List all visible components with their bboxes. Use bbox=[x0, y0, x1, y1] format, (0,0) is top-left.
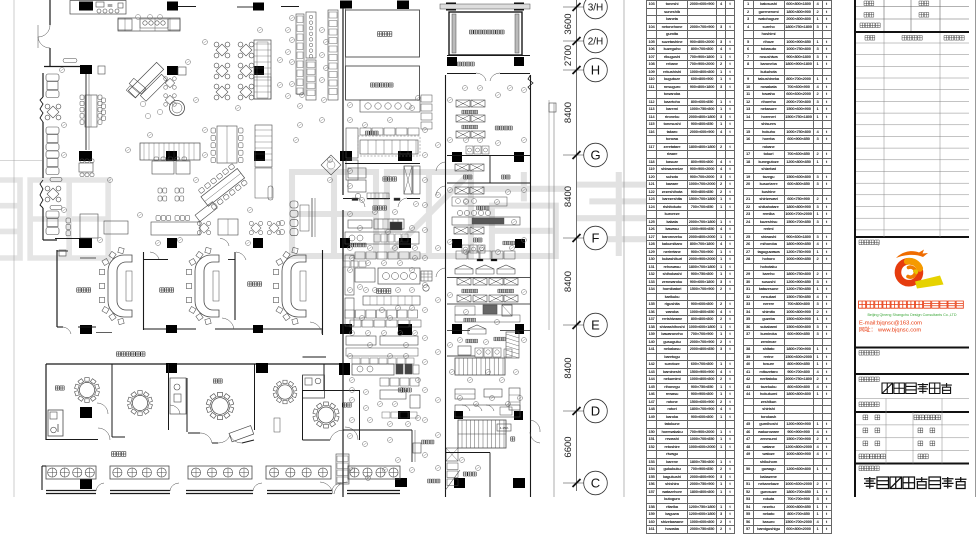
svg-text:8400: 8400 bbox=[563, 271, 574, 292]
svg-text:3/H: 3/H bbox=[588, 3, 604, 14]
svg-text:2/H: 2/H bbox=[588, 37, 604, 48]
svg-text:H: H bbox=[591, 63, 600, 78]
svg-text:D: D bbox=[591, 404, 600, 419]
svg-text:F: F bbox=[592, 231, 600, 246]
svg-text:E-mail:bjqnsc@163.com: E-mail:bjqnsc@163.com bbox=[859, 321, 922, 327]
svg-text:3600: 3600 bbox=[563, 13, 574, 34]
svg-text::: : bbox=[878, 242, 879, 248]
svg-text:C: C bbox=[591, 476, 600, 491]
svg-text:E: E bbox=[591, 318, 600, 333]
svg-text:8400: 8400 bbox=[563, 357, 574, 378]
svg-text:Beijing Qineng Shangchu Design: Beijing Qineng Shangchu Design Consultan… bbox=[867, 313, 956, 317]
svg-text:G: G bbox=[590, 148, 600, 163]
svg-text:8400: 8400 bbox=[563, 186, 574, 207]
svg-text:网址： www.bjqnsc.com: 网址： www.bjqnsc.com bbox=[859, 326, 921, 334]
svg-text:6600: 6600 bbox=[563, 436, 574, 457]
svg-text:8400: 8400 bbox=[563, 102, 574, 123]
svg-text:2700: 2700 bbox=[563, 45, 574, 66]
